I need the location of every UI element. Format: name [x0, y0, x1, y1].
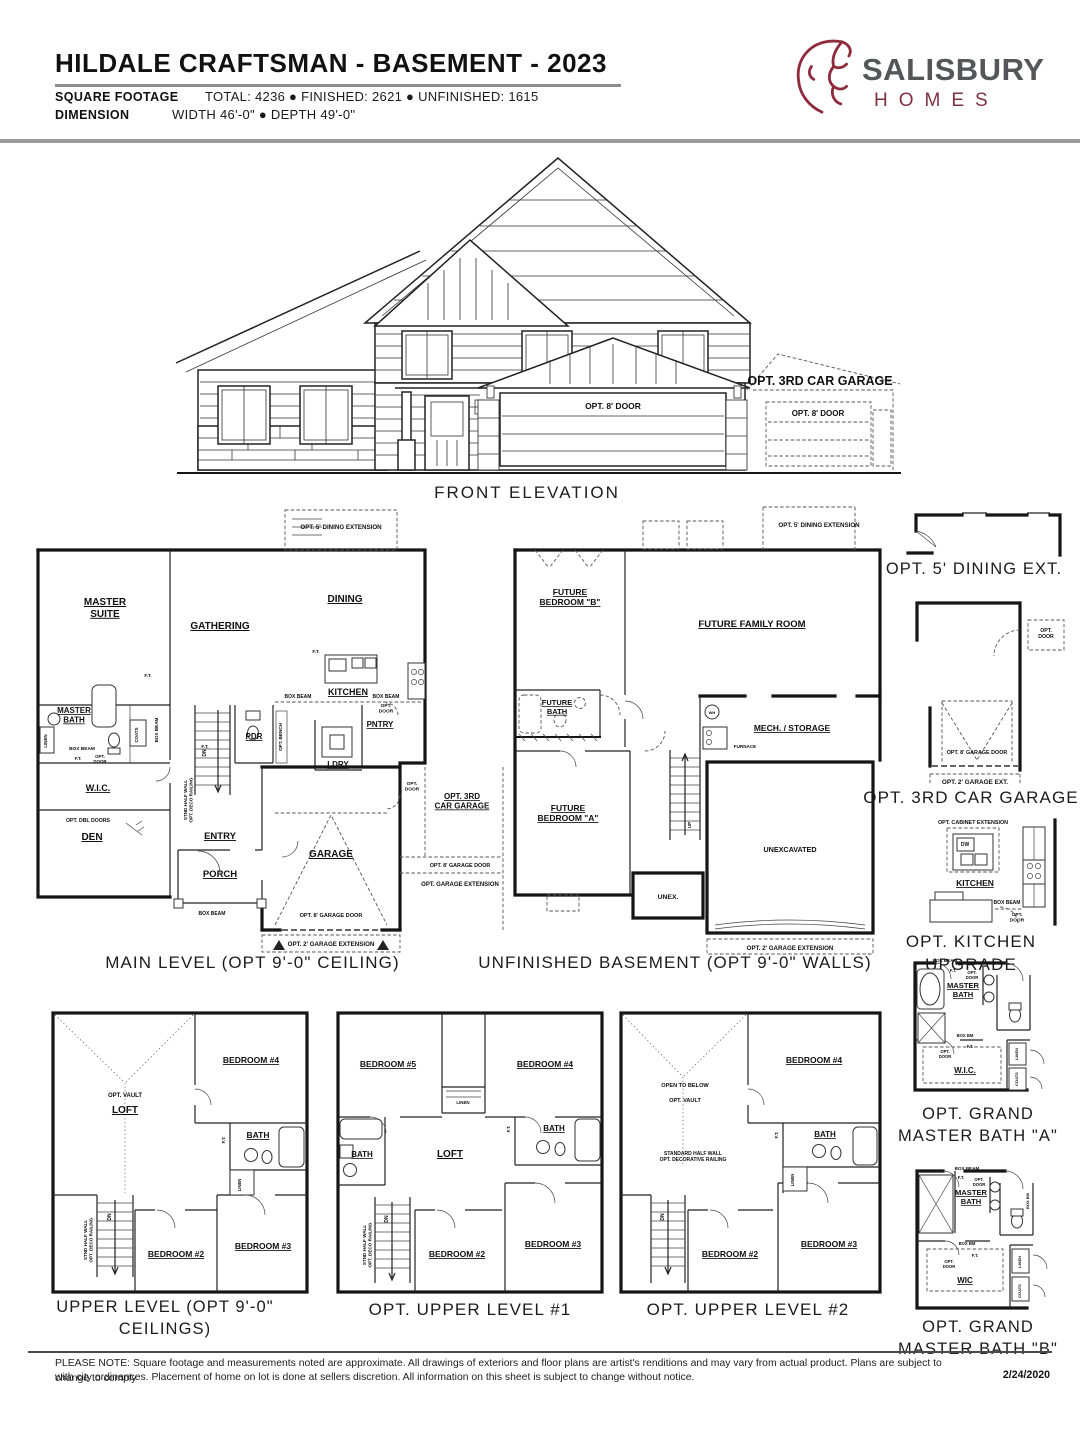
future-bedroom-b-label: FUTUREBEDROOM "B"	[540, 587, 601, 607]
opt-door-label: OPT.DOOR	[939, 1049, 952, 1059]
ldry-label: LDRY	[327, 760, 349, 769]
dw-label: DW	[961, 842, 970, 848]
main-level-caption: MAIN LEVEL (OPT 9'-0" CEILING)	[30, 952, 475, 975]
box-beam: BOX BEAM	[199, 911, 226, 917]
front-elevation-drawing: OPT. 8' DOOR OPT. 3RD CAR GARAGE OPT. 8'…	[170, 148, 910, 483]
garage-label: GARAGE	[309, 849, 353, 860]
walls	[515, 550, 880, 933]
furnace-label: FURNACE	[734, 744, 756, 749]
linen-label: LINEN	[43, 734, 48, 747]
future-bath-label: FUTUREBATH	[542, 698, 572, 716]
labels: OPEN TO BELOW OPT. VAULT BEDROOM #4 BATH…	[660, 1055, 858, 1259]
opt-3rd-car-garage-dashed: OPT. 3RD CAR GARAGE OPT. 8' DOOR	[747, 354, 900, 470]
opt-door-label: OPT.DOOR	[93, 754, 107, 764]
brand-name: SALISBURY	[862, 52, 1044, 88]
garage-door-label: OPT. 8' DOOR	[585, 401, 641, 411]
entry-label: ENTRY	[204, 831, 237, 842]
bedroom3-label: BEDROOM #3	[525, 1239, 581, 1249]
opt-garage-door-label: OPT. 8' DOOR	[792, 409, 845, 418]
coats-label: COATS	[1017, 1284, 1022, 1298]
box-beam: BOX BEAM	[933, 958, 958, 963]
opt-cabinet-extension-label: OPT. CABINET EXTENSION	[938, 820, 1008, 826]
bath-right-label: BATH	[543, 1124, 565, 1133]
open-to-below-label: OPEN TO BELOW	[661, 1083, 709, 1089]
up-label: UP	[687, 822, 692, 828]
porch-label: PORCH	[203, 869, 237, 880]
opt-2-garage-extension: OPT. 2' GARAGE EXTENSION	[747, 945, 834, 952]
bedroom5-label: BEDROOM #5	[360, 1059, 416, 1069]
elevation-caption: FRONT ELEVATION	[157, 482, 897, 505]
room-labels: FUTUREBEDROOM "B" FUTURE FAMILY ROOM FUT…	[538, 587, 831, 901]
bedroom2-label: BEDROOM #2	[148, 1249, 204, 1259]
ft-label: F.T.	[312, 649, 319, 654]
master-bath-label: MASTERBATH	[947, 981, 980, 999]
bath-left-label: BATH	[351, 1150, 373, 1159]
unex-label: UNEX.	[658, 894, 679, 901]
box-bm-label: BOX BM	[957, 1033, 974, 1038]
labels: OPT. VAULT LOFT BEDROOM #4 BATH BEDROOM …	[83, 1055, 291, 1262]
half-wall-label: STND HALF WALLOPT. DECO RAILING	[183, 777, 193, 822]
garage-door: OPT. 8' DOOR	[500, 393, 726, 466]
sqft-value: TOTAL: 4236 ● FINISHED: 2621 ● UNFINISHE…	[205, 89, 539, 104]
master-bath-label: MASTERBATH	[57, 706, 91, 724]
box-beam: BOX BEAM	[69, 746, 95, 752]
box-beam: BOX BEAM	[994, 900, 1021, 906]
linen-label: LINEN	[456, 1100, 469, 1105]
future-bedroom-a-label: FUTUREBEDROOM "A"	[538, 803, 599, 823]
opt-bath-a-caption: OPT. GRAND MASTER BATH "A"	[878, 1103, 1078, 1147]
opt-door-label: OPT.DOOR	[1038, 628, 1054, 640]
opt-8-garage-door-side: OPT. 8' GARAGE DOOR	[430, 863, 491, 869]
opt-kitchen-plan: OPT. CABINET EXTENSION DW KITCHEN BOX BE…	[905, 812, 1075, 930]
bath-label: BATH	[247, 1130, 270, 1140]
master-suite-label: MASTERSUITE	[84, 597, 127, 620]
box-beam: BOX BEAM	[373, 694, 400, 700]
dn-label: DN	[202, 749, 208, 757]
wic-label: WIC	[957, 1276, 973, 1285]
opt-vault-label: OPT. VAULT	[108, 1093, 142, 1099]
opt-bath-b-plan: MASTERBATH BOX BEAM F.T. OPT.DOOR BOX BM…	[905, 1163, 1075, 1313]
future-family-room-label: FUTURE FAMILY ROOM	[698, 619, 805, 630]
box-bm-label: BOX BM	[959, 1241, 976, 1246]
loft-label: LOFT	[112, 1105, 138, 1116]
half-wall-label: STND HALF WALLOPT. DECO RAILING	[362, 1222, 372, 1267]
unexcavated-label: UNEXCAVATED	[763, 845, 816, 854]
standard-half-wall-label: STANDARD HALF WALLOPT. DECORATIVE RAILIN…	[660, 1151, 727, 1163]
dining-label: DINING	[328, 594, 363, 605]
bath-label: BATH	[814, 1130, 836, 1139]
stairs-icon	[651, 1200, 685, 1274]
opt-3rd-garage-plan: OPT.DOOR OPT. 8' GARAGE DOOR OPT. 2' GAR…	[902, 588, 1077, 788]
dimension-value: WIDTH 46'-0" ● DEPTH 49'-0"	[172, 107, 355, 122]
opt-2-garage-extension: OPT. 2' GARAGE EXTENSION	[288, 941, 375, 948]
gathering-label: GATHERING	[190, 621, 249, 632]
opt-upper2-plan: OPEN TO BELOW OPT. VAULT BEDROOM #4 BATH…	[613, 1005, 888, 1295]
box-beam: BOX BEAM	[955, 1166, 980, 1171]
footer-note-line2: with city ordinances. Placement of home …	[55, 1371, 960, 1386]
dn-label: DN	[660, 1213, 666, 1221]
bedroom3-label: BEDROOM #3	[235, 1241, 291, 1251]
wic-label: W.I.C.	[954, 1066, 976, 1075]
opt-garage-extension: OPT. GARAGE EXTENSION	[421, 882, 499, 888]
linen-label: LINEN	[790, 1174, 795, 1187]
bedroom4-label: BEDROOM #4	[223, 1055, 279, 1065]
box-beam-vert: BOX BEAM	[154, 717, 159, 742]
box-beam: BOX BEAM	[285, 694, 312, 700]
ft-label: F.T.	[958, 1175, 965, 1180]
main-level-plan: MASTERSUITE GATHERING DINING KITCHEN MAS…	[30, 505, 505, 957]
ft-label: F.T.	[967, 1044, 974, 1049]
wh-label: WH	[709, 710, 716, 715]
opt-door-label: OPT.DOOR	[405, 781, 420, 793]
bedroom2-label: BEDROOM #2	[702, 1249, 758, 1259]
stairs-icon	[97, 1200, 133, 1274]
opt-vault-label: OPT. VAULT	[669, 1098, 701, 1104]
mech-storage-label: MECH. / STORAGE	[754, 723, 831, 733]
opt-bench-label: OPT. BENCH	[278, 722, 283, 751]
dining-ext-label: OPT. 5' DINING EXTENSION	[778, 522, 860, 529]
basement-ca ption: UNFINISHED BASEMENT (OPT 9'-0" WALLS)	[455, 952, 895, 975]
floor-plan-sheet: HILDALE CRAFTSMAN - BASEMENT - 2023 SQUA…	[0, 0, 1080, 1440]
upper-level-plan: OPT. VAULT LOFT BEDROOM #4 BATH BEDROOM …	[45, 1005, 315, 1295]
lion-logo-icon	[788, 36, 863, 118]
footer-divider	[28, 1351, 1052, 1353]
vault-lines	[55, 1015, 193, 1193]
ft-label: F.T.	[144, 673, 151, 678]
opt-bath-b-caption: OPT. GRAND MASTER BATH "B"	[878, 1316, 1078, 1360]
ft-label: F.T.	[201, 744, 208, 749]
linen-label: LINEN	[1017, 1256, 1022, 1268]
opt-upper1-plan: BEDROOM #5 BEDROOM #4 LINEN BATH LOFT BA…	[330, 1005, 610, 1295]
loft-label: LOFT	[437, 1149, 463, 1160]
opt-door-label: OPT.DOOR	[1010, 912, 1025, 924]
bedroom4-label: BEDROOM #4	[786, 1055, 842, 1065]
labels: BEDROOM #5 BEDROOM #4 LINEN BATH LOFT BA…	[351, 1059, 581, 1267]
wic-label: W.I.C.	[86, 783, 111, 793]
opt-door-label: OPT.DOOR	[973, 1177, 986, 1187]
stairs-icon	[375, 1202, 410, 1280]
bedroom4-label: BEDROOM #4	[517, 1059, 573, 1069]
dn-label: DN	[107, 1213, 113, 1221]
opt-bath-a-plan: MASTERBATH BOX BEAM F.T. OPT.DOOR BOX BM…	[905, 955, 1075, 1100]
upper-level-caption: UPPER LEVEL (OPT 9'-0" CEILINGS)	[20, 1296, 310, 1340]
bedroom2-label: BEDROOM #2	[429, 1249, 485, 1259]
footer-date: 2/24/2020	[930, 1369, 1050, 1381]
coats-label: COATS	[1014, 1072, 1019, 1086]
ft-label: F.T.	[75, 756, 82, 761]
den-label: DEN	[81, 832, 102, 843]
linen-label: LINEN	[237, 1179, 242, 1192]
ft-label: F.T.	[972, 1253, 979, 1258]
dimension-label: DIMENSION	[55, 108, 129, 122]
opt-8-garage-door: OPT. 8' GARAGE DOOR	[947, 750, 1008, 756]
opt-door-label: OPT.DOOR	[966, 970, 979, 980]
box-bm-vert: BOX BM	[1025, 1192, 1030, 1209]
stairs-icon	[195, 710, 230, 792]
dining-ext-label: OPT. 5' DINING EXTENSION	[300, 524, 382, 531]
opt-door-label: OPT.DOOR	[943, 1259, 956, 1269]
opt-3rd-garage-label: OPT. 3RDCAR GARAGE	[435, 792, 490, 810]
coats-label: COATS	[134, 727, 139, 742]
opt-upper2-caption: OPT. UPPER LEVEL #2	[608, 1299, 888, 1322]
sqft-label: SQUARE FOOTAGE	[55, 90, 178, 104]
basement-plan: FUTUREBEDROOM "B" FUTURE FAMILY ROOM FUT…	[505, 505, 895, 960]
vault-lines	[623, 1015, 746, 1165]
opt-8-garage-door: OPT. 8' GARAGE DOOR	[300, 913, 363, 919]
master-bath-label: MASTERBATH	[955, 1188, 988, 1206]
page-title: HILDALE CRAFTSMAN - BASEMENT - 2023	[55, 48, 621, 87]
opt-upper1-caption: OPT. UPPER LEVEL #1	[330, 1299, 610, 1322]
half-wall-label: STND HALF WALLOPT. DECO RAILING	[83, 1217, 93, 1262]
dn-label: DN	[384, 1215, 390, 1223]
ft-label: F.T.	[774, 1132, 779, 1139]
linen-label: LINEN	[1014, 1048, 1019, 1060]
opt-dining-ext-plan	[902, 505, 1072, 557]
opt-dbl-doors-label: OPT. DBL DOORS	[66, 818, 111, 824]
pdr-label: PDR	[246, 732, 263, 741]
kitchen-label: KITCHEN	[956, 878, 994, 888]
brand-sub: HOMES	[874, 90, 999, 112]
stairs-icon	[670, 754, 700, 835]
ft-label: F.T.	[506, 1126, 511, 1133]
opt-dining-ext-caption: OPT. 5' DINING EXT.	[868, 558, 1080, 580]
opt-3rd-garage-caption: OPT. 3RD CAR GARAGE	[862, 787, 1080, 810]
header-divider	[0, 139, 1080, 143]
ft-label: F.T.	[950, 968, 957, 973]
bedroom3-label: BEDROOM #3	[801, 1239, 857, 1249]
opt-3rd-garage-label: OPT. 3RD CAR GARAGE	[747, 374, 892, 388]
opt-2-garage-ext: OPT. 2' GARAGE EXT.	[942, 779, 1008, 786]
pntry-label: PNTRY	[367, 720, 394, 729]
fixtures	[340, 1091, 600, 1177]
kitchen-label: KITCHEN	[328, 687, 368, 697]
labels: MASTERBATH BOX BEAM F.T. OPT.DOOR BOX BM…	[933, 958, 1019, 1086]
ft-label: F.T.	[221, 1137, 226, 1144]
